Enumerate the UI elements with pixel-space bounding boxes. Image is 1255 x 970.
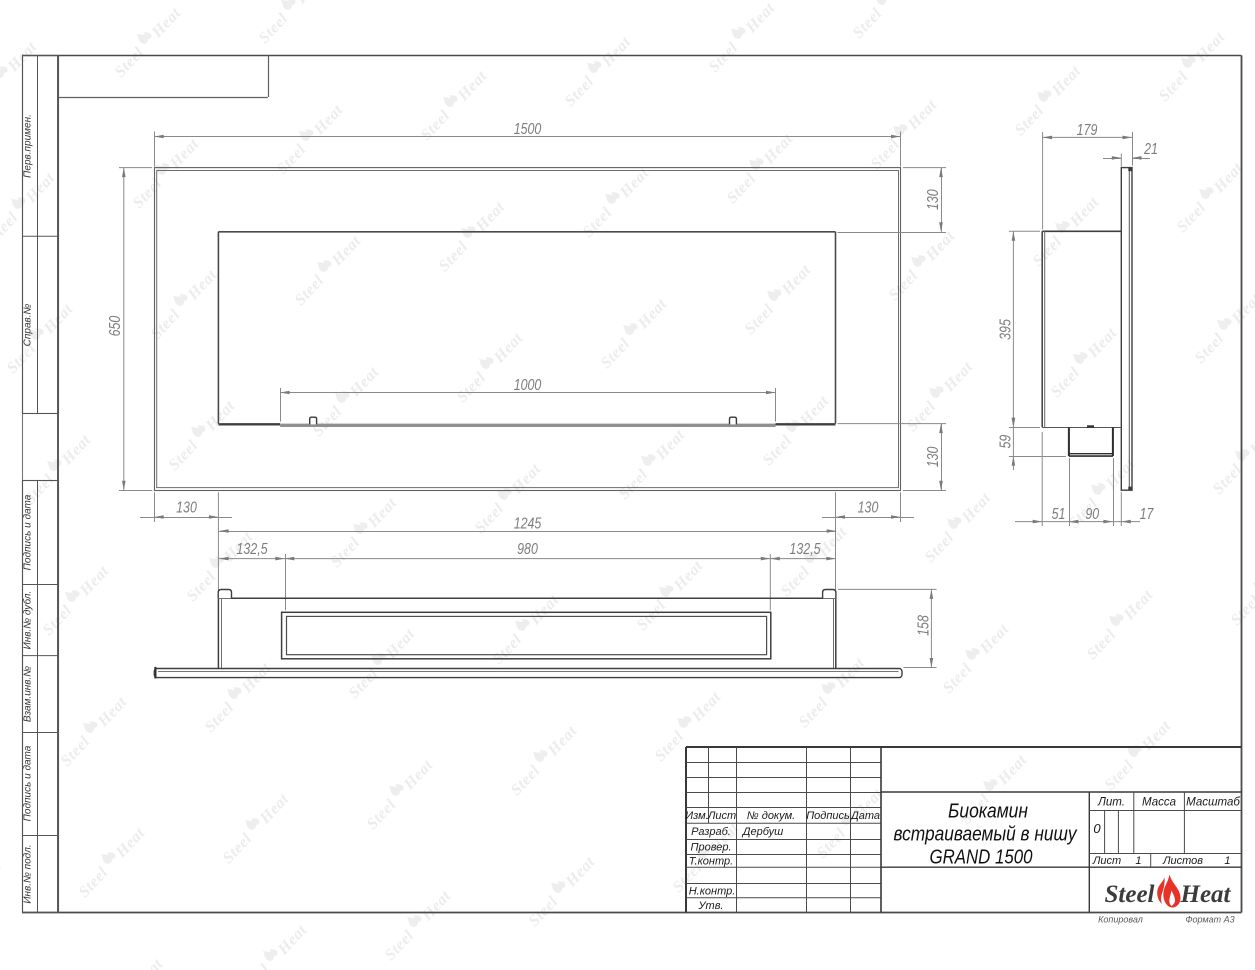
svg-text:980: 980 [517, 541, 538, 558]
svg-text:21: 21 [1143, 141, 1158, 158]
svg-text:Подпись и дата: Подпись и дата [23, 494, 34, 570]
svg-text:1245: 1245 [514, 516, 542, 533]
svg-text:179: 179 [1077, 122, 1098, 139]
svg-text:395: 395 [997, 319, 1014, 340]
svg-text:158: 158 [916, 615, 933, 636]
svg-text:650: 650 [107, 316, 124, 337]
svg-text:1: 1 [1224, 855, 1230, 867]
svg-text:0: 0 [1093, 821, 1101, 836]
svg-text:90: 90 [1085, 506, 1099, 523]
svg-text:Лист: Лист [1092, 855, 1121, 867]
svg-text:Лит.: Лит. [1097, 796, 1125, 808]
svg-text:Лист: Лист [707, 810, 736, 822]
svg-text:130: 130 [925, 446, 942, 467]
svg-text:Дербуш: Дербуш [741, 826, 784, 838]
svg-text:Разраб.: Разраб. [691, 826, 731, 838]
svg-text:Масштаб: Масштаб [1186, 796, 1240, 808]
svg-text:Heat: Heat [1180, 881, 1232, 908]
svg-text:132,5: 132,5 [789, 541, 820, 558]
svg-text:Подпись: Подпись [806, 810, 850, 822]
svg-text:Копировал: Копировал [1098, 915, 1143, 925]
svg-text:Инв.№ дубл.: Инв.№ дубл. [22, 591, 34, 650]
svg-text:Провер.: Провер. [691, 841, 732, 853]
svg-text:Листов: Листов [1162, 855, 1203, 867]
svg-text:Справ.№: Справ.№ [23, 303, 34, 346]
svg-text:Биокамин: Биокамин [948, 801, 1028, 823]
svg-text:Дата: Дата [849, 810, 880, 822]
svg-text:Steel: Steel [1105, 881, 1155, 908]
svg-text:Взам.инв.№: Взам.инв.№ [23, 666, 34, 722]
svg-text:Инв.№ подл.: Инв.№ подл. [23, 844, 34, 903]
svg-text:Формат А3: Формат А3 [1185, 915, 1234, 925]
svg-text:GRAND 1500: GRAND 1500 [930, 847, 1033, 869]
svg-text:Подпись и дата: Подпись и дата [23, 745, 34, 821]
svg-text:17: 17 [1140, 506, 1155, 523]
svg-text:встраиваемый в нишу: встраиваемый в нишу [894, 824, 1078, 846]
svg-text:Масса: Масса [1142, 796, 1176, 808]
svg-text:132,5: 132,5 [236, 541, 267, 558]
svg-text:130: 130 [858, 500, 879, 517]
svg-text:Утв.: Утв. [698, 900, 724, 912]
svg-text:59: 59 [997, 435, 1014, 449]
svg-text:Изм.: Изм. [685, 810, 708, 822]
svg-text:130: 130 [176, 500, 197, 517]
svg-text:Т.контр.: Т.контр. [689, 856, 733, 868]
svg-text:1: 1 [1135, 855, 1141, 867]
svg-text:51: 51 [1052, 506, 1066, 523]
svg-text:1500: 1500 [514, 121, 542, 138]
svg-text:1000: 1000 [514, 377, 542, 394]
svg-text:№ докум.: № докум. [747, 810, 795, 822]
svg-text:Перв.примен.: Перв.примен. [23, 114, 34, 178]
svg-text:130: 130 [925, 189, 942, 210]
svg-text:Н.контр.: Н.контр. [689, 885, 736, 897]
